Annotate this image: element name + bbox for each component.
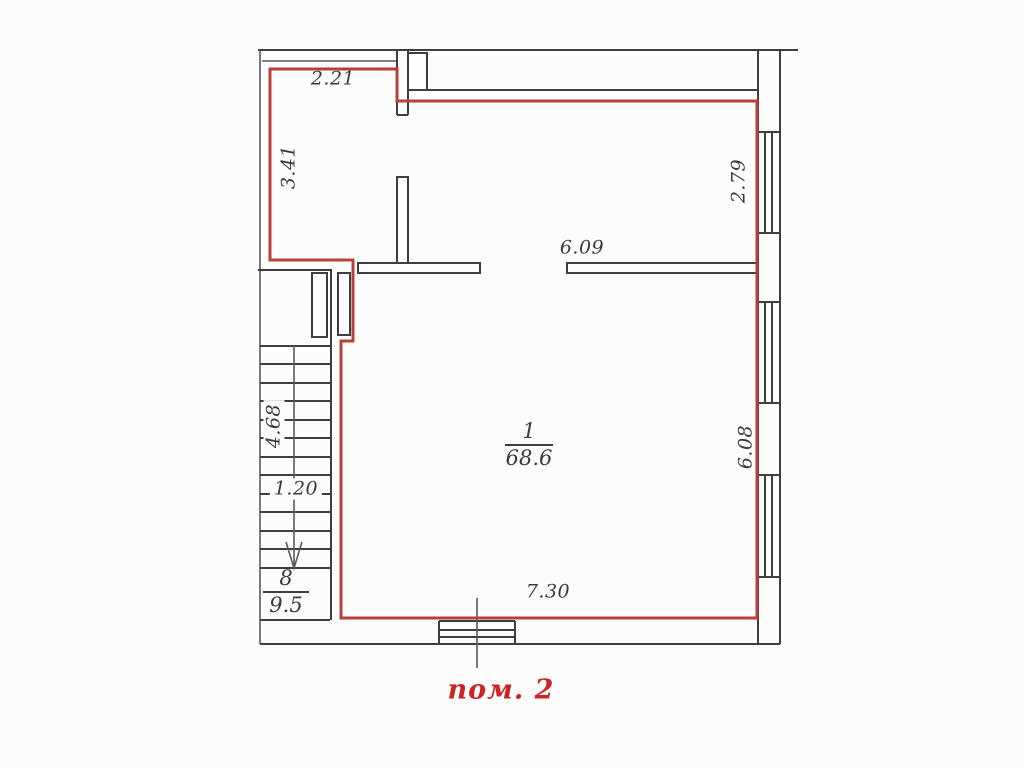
room-stairs-number: 8: [279, 568, 292, 589]
dim-stair-run: 4.68: [264, 400, 285, 452]
building-outline: [258, 50, 798, 644]
floor-plan-drawing: [0, 0, 1024, 768]
room-outline-red: [270, 69, 757, 618]
right-wall-windows: [758, 90, 780, 644]
interior-partitions: [358, 177, 757, 273]
room-label-main: 1 68.6: [505, 421, 553, 469]
premise-caption: пом. 2: [448, 675, 555, 706]
room-stairs-area: 9.5: [269, 595, 302, 616]
dim-right-lower: 6.08: [737, 425, 756, 469]
room-main-area: 68.6: [506, 448, 553, 469]
dim-stair-width: 1.20: [270, 479, 322, 500]
dim-interior-wall: 6.09: [560, 239, 604, 258]
dim-top-offset: 2.21: [311, 70, 355, 89]
room-main-number: 1: [522, 421, 535, 442]
floor-plan-page: 2.21 3.41 2.79 6.09 6.08 4.68 1.20 7.30 …: [0, 0, 1024, 768]
dim-bottom: 7.30: [526, 583, 570, 602]
room-label-stairs: 8 9.5: [263, 568, 309, 616]
dim-right-upper: 2.79: [730, 159, 749, 203]
bottom-window: [439, 598, 515, 668]
dim-left-upper: 3.41: [280, 145, 299, 189]
